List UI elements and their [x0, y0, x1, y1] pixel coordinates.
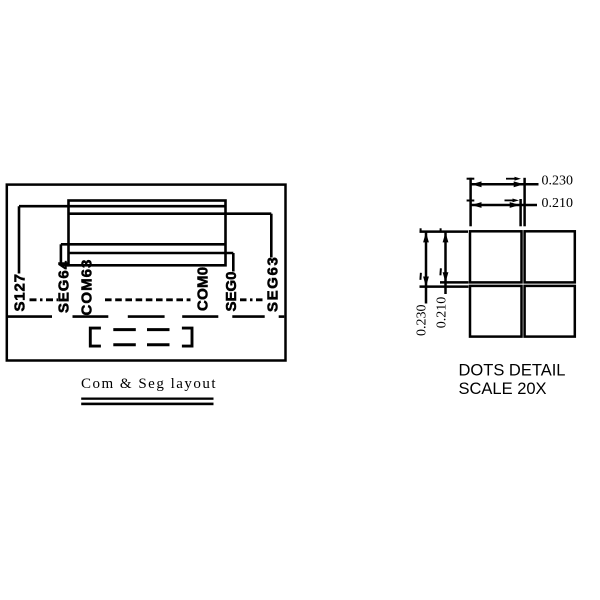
svg-text:COM63: COM63: [79, 259, 96, 316]
svg-text:S127: S127: [11, 273, 28, 311]
svg-text:0.210: 0.210: [434, 297, 449, 329]
svg-text:0.230: 0.230: [542, 174, 574, 189]
svg-text:SEG64: SEG64: [55, 260, 72, 313]
svg-text:SEG63: SEG63: [265, 256, 282, 312]
svg-text:DOTS DETAIL: DOTS DETAIL: [459, 361, 566, 379]
svg-text:SEG0: SEG0: [223, 271, 240, 311]
svg-text:COM0: COM0: [195, 267, 212, 311]
svg-text:SCALE 20X: SCALE 20X: [459, 380, 547, 398]
svg-text:Com & Seg layout: Com & Seg layout: [81, 376, 217, 392]
svg-text:0.210: 0.210: [542, 196, 574, 211]
svg-text:0.230: 0.230: [415, 305, 430, 337]
